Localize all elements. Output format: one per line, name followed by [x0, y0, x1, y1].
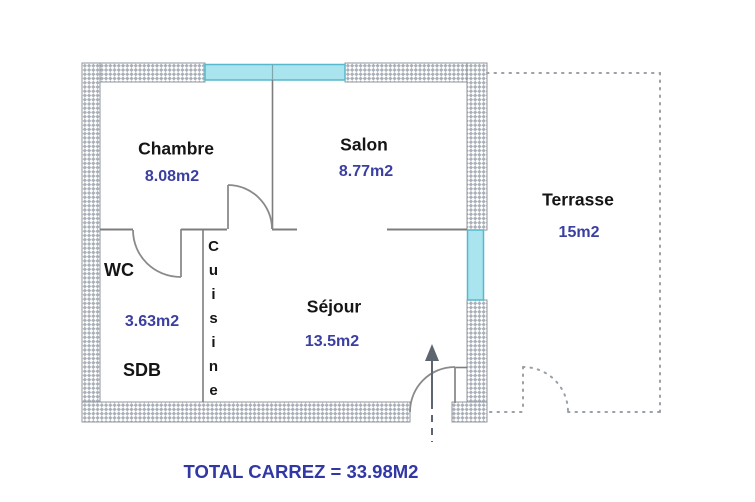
entrance-arrow — [425, 344, 439, 442]
wc-label: WC — [104, 261, 134, 279]
wc-door-arc — [133, 230, 181, 277]
window-right — [468, 230, 484, 300]
sdb-label: SDB — [123, 361, 161, 379]
terrasse-area: 15m2 — [559, 225, 600, 241]
wall-right-upper — [467, 63, 487, 230]
terrasse-label: Terrasse — [542, 191, 614, 209]
terrace-outline — [487, 73, 660, 412]
window-top — [205, 65, 345, 81]
total-carrez-label: TOTAL CARREZ = 33.98M2 — [184, 461, 419, 483]
wc-area: 3.63m2 — [125, 314, 179, 330]
terrace-door-arc — [523, 367, 568, 412]
salon-label: Salon — [340, 136, 388, 154]
sejour-label: Séjour — [307, 298, 361, 316]
cuisine-label: Cuisine — [206, 238, 221, 406]
chambre-door-arc — [228, 185, 272, 229]
floor-plan-drawing — [0, 0, 755, 502]
wall-left — [82, 63, 100, 422]
wall-bottom-right — [452, 402, 487, 422]
chambre-area: 8.08m2 — [145, 169, 199, 185]
doors — [133, 185, 455, 412]
interior-walls — [100, 80, 467, 402]
chambre-label: Chambre — [138, 140, 214, 158]
wall-top-right — [345, 63, 487, 82]
salon-area: 8.77m2 — [339, 164, 393, 180]
windows — [205, 65, 484, 301]
floor-plan: Chambre 8.08m2 Salon 8.77m2 WC 3.63m2 SD… — [0, 0, 755, 502]
wall-bottom-main — [82, 402, 410, 422]
sejour-area: 13.5m2 — [305, 334, 359, 350]
entrance-arrow-head — [425, 344, 439, 361]
